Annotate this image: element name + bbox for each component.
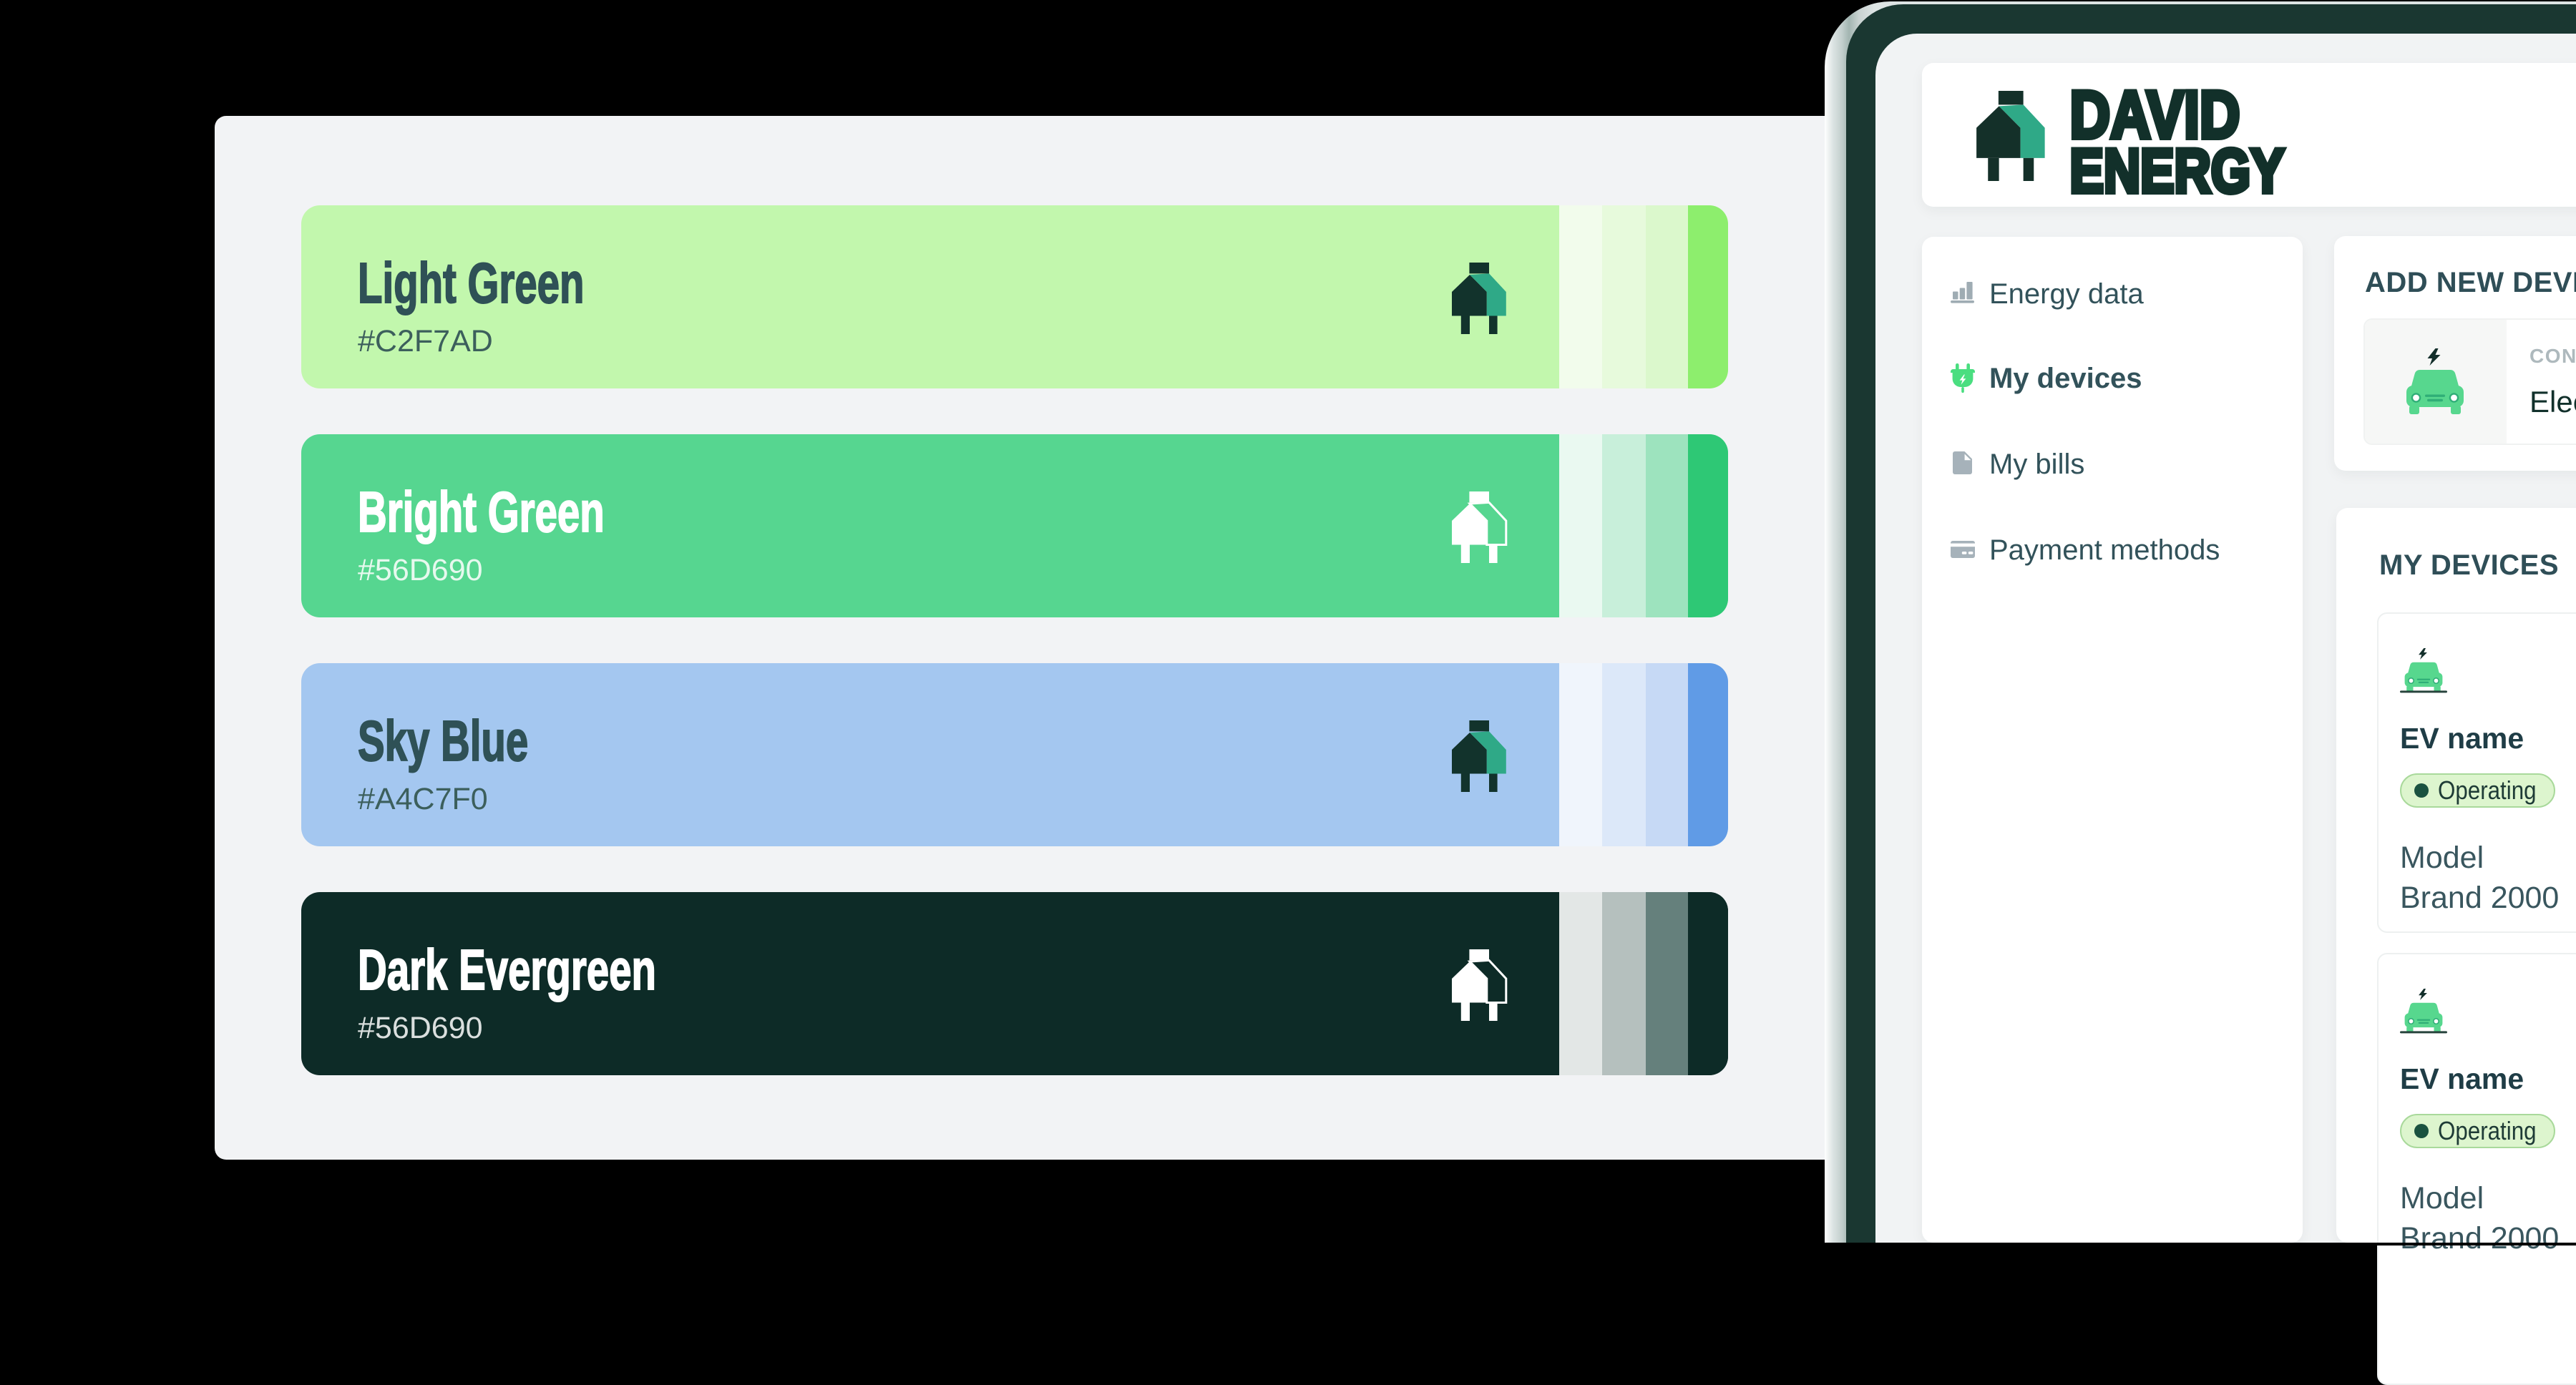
svg-text:ENERGY: ENERGY [2070,137,2285,206]
